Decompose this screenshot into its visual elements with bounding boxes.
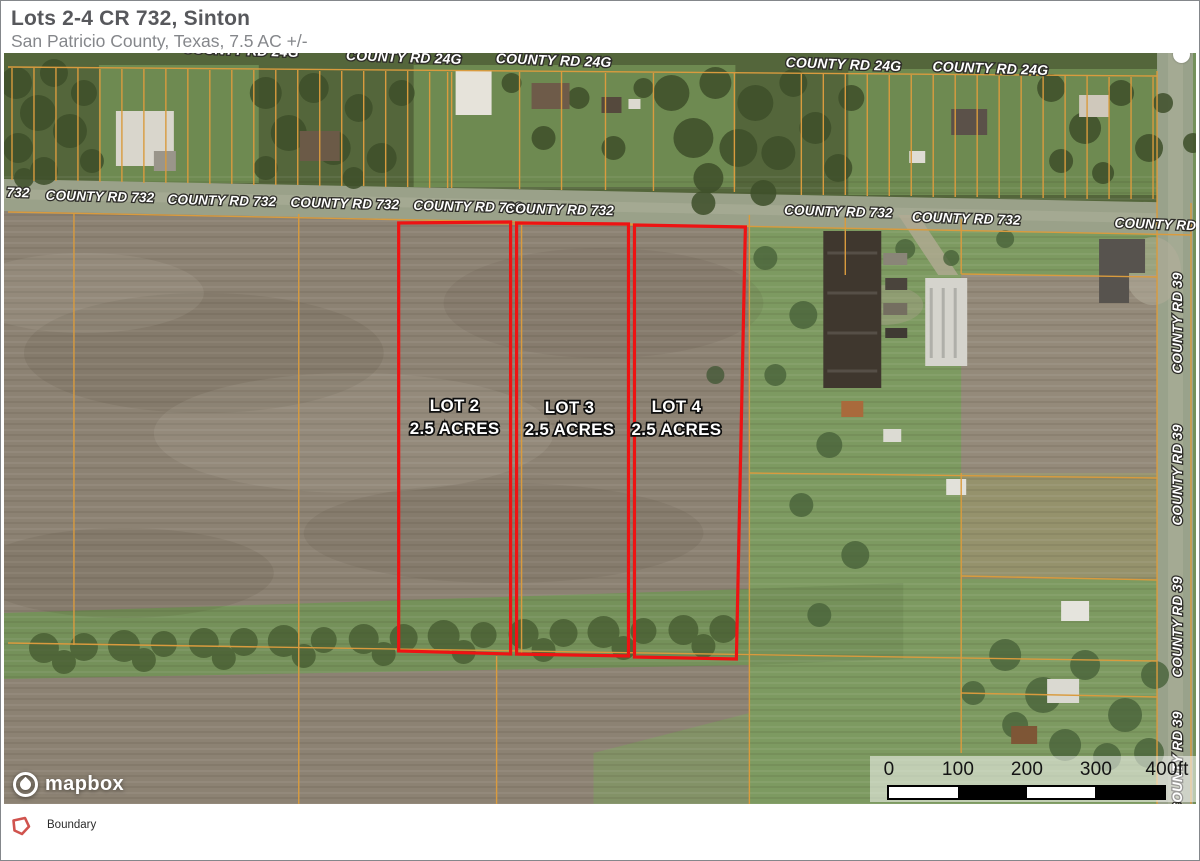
satellite-map-svg: COUNTY RD 24G COUNTY RD 24G COUNTY RD 24… [4,53,1196,804]
road-label: COUNTY RD 732 [505,201,614,218]
road-label: COUNTY RD 39 [1170,424,1185,525]
map-canvas[interactable]: COUNTY RD 24G COUNTY RD 24G COUNTY RD 24… [4,53,1196,804]
header: Lots 2-4 CR 732, Sinton San Patricio Cou… [1,1,1199,53]
scale-tick: 200 [1011,759,1043,781]
mapbox-attribution[interactable]: mapbox [13,772,124,797]
legend: Boundary [1,804,1199,837]
mapbox-logo-icon [13,772,38,797]
lot-area: 2.5 ACRES [525,420,615,439]
scale-tick: 400ft [1145,759,1188,781]
boundary-legend-icon [10,815,32,837]
house [1099,239,1145,273]
lot-area: 2.5 ACRES [410,419,500,438]
road-label: COUNTY RD 732 [167,192,276,209]
page: Lots 2-4 CR 732, Sinton San Patricio Cou… [0,0,1200,861]
lot-name: LOT 3 [545,398,595,417]
lot-name: LOT 2 [430,396,480,415]
mapbox-logo-text: mapbox [45,773,124,796]
scale-tick: 0 [884,759,895,781]
road-label: COUNTY RD 39 [1170,272,1185,373]
scale-bar: 0 100 200 300 400ft [870,756,1196,802]
page-title: Lots 2-4 CR 732, Sinton [11,6,1199,31]
scale-bar-segments [887,785,1166,800]
boundary-legend-label: Boundary [47,819,96,831]
road-label: COUNTY RD 732 [46,188,155,205]
lot-area: 2.5 ACRES [632,420,722,439]
road-label: COUNTY RD 732 [784,202,893,220]
lot-name: LOT 4 [652,397,702,416]
page-subtitle: San Patricio County, Texas, 7.5 AC +/- [11,31,1199,52]
barn [823,231,881,388]
road-label: COUNTY RD 732 [290,195,399,212]
road-label: 732 [6,185,30,201]
scale-tick: 300 [1080,759,1112,781]
scale-tick: 100 [942,759,974,781]
road-label: COUNTY RD 39 [1170,576,1185,677]
